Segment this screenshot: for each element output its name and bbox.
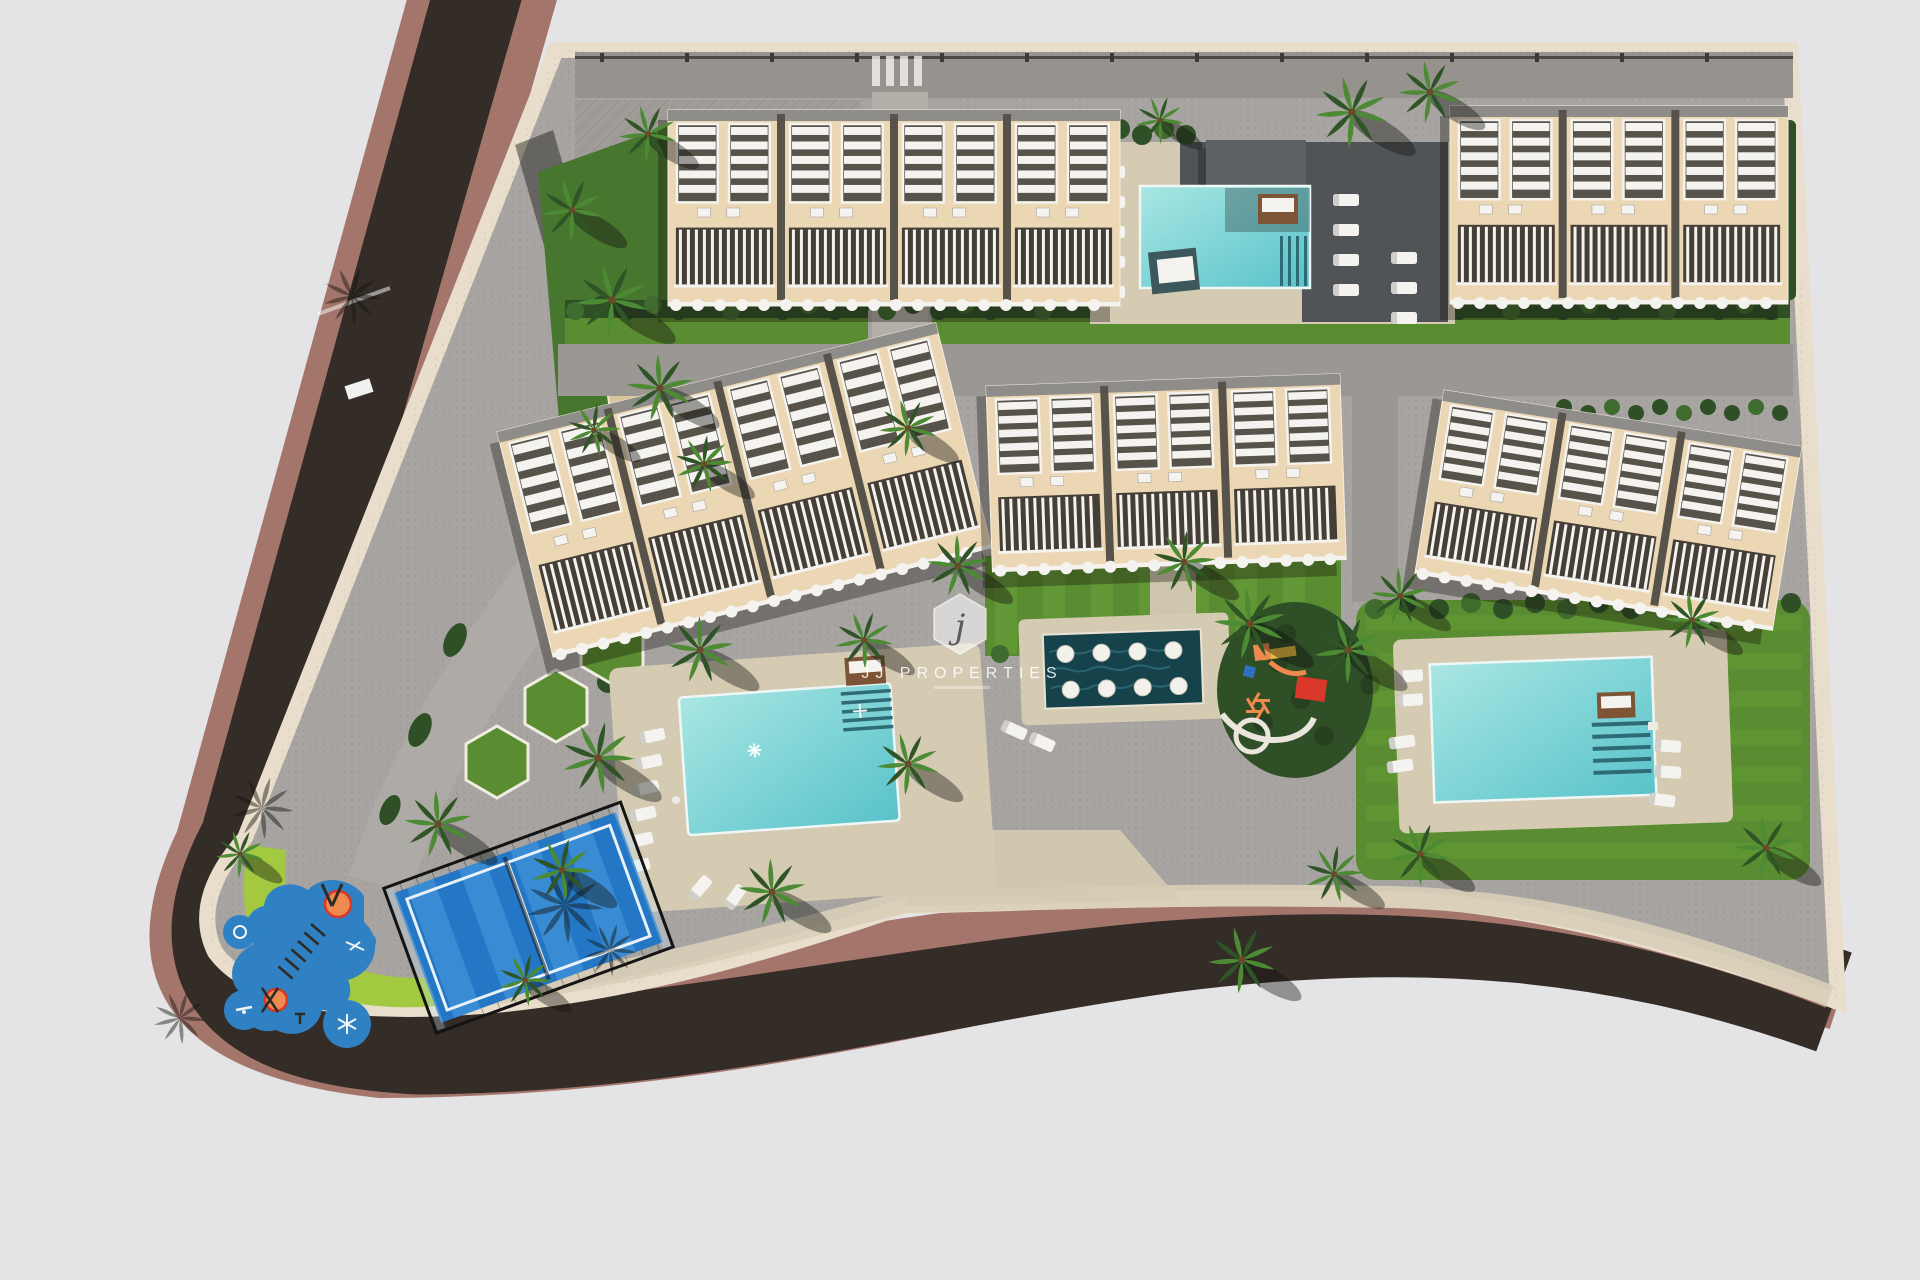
bush (1781, 593, 1801, 613)
sun-lounger (1333, 284, 1359, 296)
in-water-daybed (1129, 643, 1147, 661)
sun-lounger (1655, 765, 1682, 779)
watermark-subline (934, 686, 990, 689)
play-house (1295, 676, 1328, 702)
in-water-daybed (1165, 641, 1183, 659)
watermark-brand: JJ PROPERTIES (861, 665, 1062, 682)
main-pool (679, 683, 900, 835)
townhouse-block-north-east (1440, 106, 1788, 320)
side-table (672, 796, 680, 804)
bush (1652, 399, 1668, 415)
bush (991, 645, 1009, 663)
playground-hedge (1217, 602, 1373, 778)
in-water-daybed (1170, 677, 1188, 695)
bush (1700, 399, 1716, 415)
side-table (1648, 722, 1658, 730)
in-water-daybed (1057, 645, 1075, 663)
in-water-daybed (1098, 680, 1116, 698)
east-pool-area (1393, 628, 1734, 834)
in-water-daybed (1062, 681, 1080, 699)
bush (1724, 405, 1740, 421)
sun-lounger (1391, 312, 1417, 324)
sun-lounger (1391, 282, 1417, 294)
in-water-daybed (1093, 644, 1111, 662)
sun-lounger (1333, 224, 1359, 236)
cabana-bed (1148, 248, 1200, 295)
sun-lounger (1333, 254, 1359, 266)
in-water-daybed (1134, 678, 1152, 696)
sun-lounger (1333, 194, 1359, 206)
bush (566, 302, 584, 320)
sun-lounger (1391, 252, 1417, 264)
bush (1772, 405, 1788, 421)
site-plan-render: j JJ PROPERTIES (0, 0, 1920, 1280)
sun-lounger (1655, 739, 1682, 753)
north-fence-line (575, 56, 1793, 59)
east-path (1352, 396, 1398, 602)
bush (1628, 405, 1644, 421)
townhouse-block-north-west (658, 110, 1120, 322)
east-pool (1430, 657, 1657, 803)
sun-lounger (1397, 693, 1424, 707)
bush (1748, 399, 1764, 415)
bush (1604, 399, 1620, 415)
shade-canopy (1206, 140, 1306, 192)
bush (1676, 405, 1692, 421)
